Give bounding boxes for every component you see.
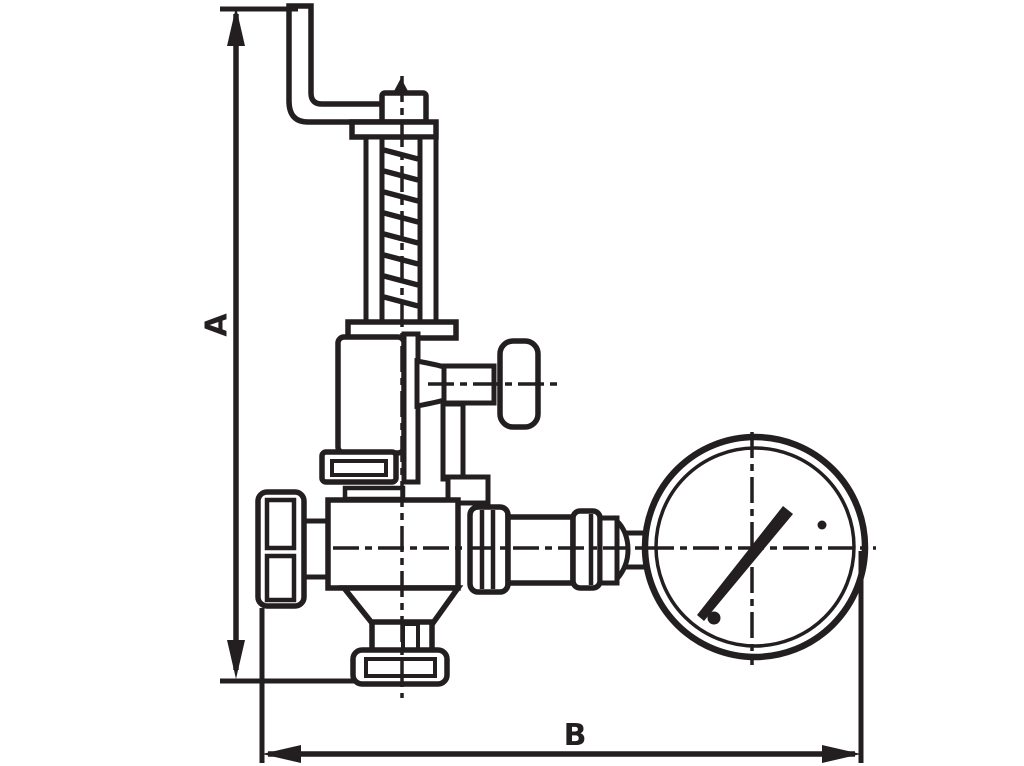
gauge-pipe bbox=[508, 517, 573, 583]
reducer bbox=[617, 521, 628, 579]
gauge-pivot-dot-lower bbox=[708, 612, 721, 625]
valve-drawing bbox=[258, 6, 876, 698]
dimension-b-arrow-left bbox=[262, 745, 301, 763]
dimension-a-label: A bbox=[200, 313, 235, 337]
test-connection-drop bbox=[443, 404, 463, 479]
valve-dimension-drawing: A B bbox=[0, 0, 1024, 766]
technical-drawing-canvas: A B bbox=[0, 0, 1024, 766]
adjustment-cap-knurl-top bbox=[267, 500, 294, 548]
adjustment-cap-knurl-bottom bbox=[267, 556, 294, 600]
dimension-b-label: B bbox=[564, 718, 587, 753]
lever-fork bbox=[382, 93, 426, 122]
adjustment-stem bbox=[303, 521, 329, 577]
spring-rail-left bbox=[366, 137, 382, 323]
collar bbox=[600, 518, 617, 583]
dimension-a-arrow-down bbox=[227, 640, 245, 679]
valve-body bbox=[328, 500, 458, 588]
bonnet bbox=[338, 337, 404, 453]
gauge-pivot-dot-right bbox=[818, 521, 827, 530]
bonnet-flange-inner bbox=[332, 461, 386, 475]
adjustment-cap-assembly bbox=[258, 492, 329, 606]
dimension-b-arrow-right bbox=[822, 745, 861, 763]
spring-rail-right bbox=[420, 137, 436, 323]
dimension-a-arrow-up bbox=[227, 7, 245, 46]
